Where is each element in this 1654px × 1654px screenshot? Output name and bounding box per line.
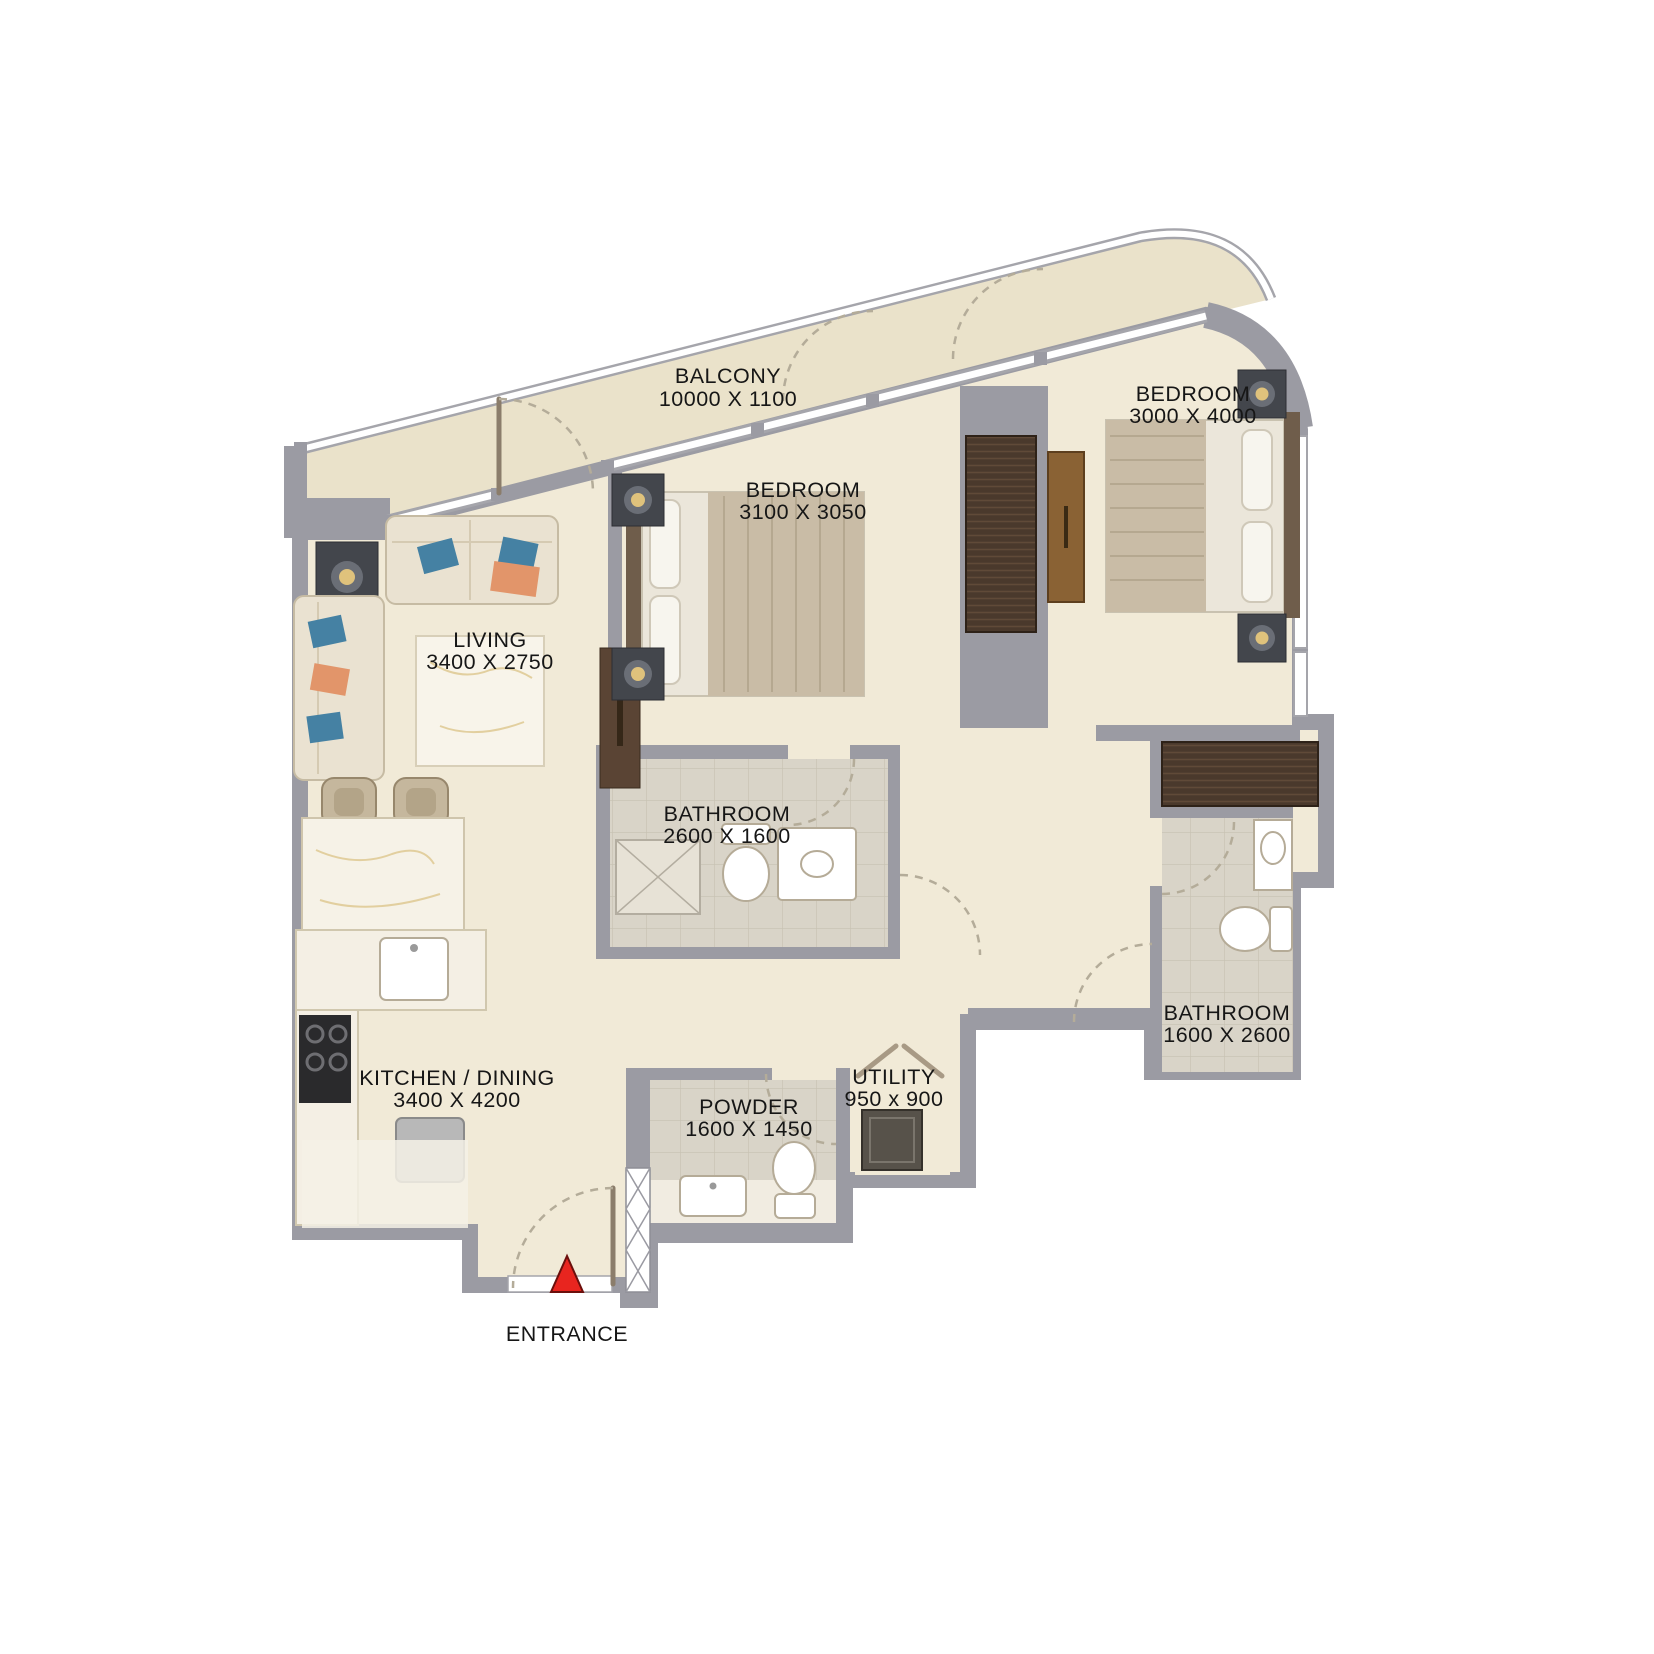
entrance-label: ENTRANCE bbox=[506, 1322, 628, 1346]
wall-bathroom2-top bbox=[1150, 806, 1293, 818]
toilet2-bowl bbox=[1220, 907, 1270, 951]
bed2-pillow-1 bbox=[1242, 430, 1272, 510]
chair-cushion-1 bbox=[334, 788, 364, 816]
dresser-handle bbox=[1064, 506, 1068, 548]
wall-bedroom2-bottom bbox=[1096, 725, 1300, 741]
window-right-2 bbox=[1294, 652, 1307, 716]
room-dims-living: 3400 X 2750 bbox=[426, 650, 553, 674]
room-label-utility: UTILITY bbox=[852, 1065, 936, 1089]
wall-powder-bottom bbox=[626, 1223, 850, 1235]
bed2-pillow-2 bbox=[1242, 522, 1272, 602]
floorplan-svg: BALCONY 10000 X 1100 BEDROOM 3000 X 4000… bbox=[0, 0, 1654, 1654]
powder-sink bbox=[680, 1176, 746, 1216]
room-dims-bathroom-1: 2600 X 1600 bbox=[663, 824, 790, 848]
room-label-powder: POWDER bbox=[699, 1095, 799, 1119]
wall-bathroom1-bottom bbox=[596, 945, 900, 959]
room-label-bathroom-2: BATHROOM bbox=[1164, 1001, 1291, 1025]
room-label-bedroom-1: BEDROOM bbox=[746, 478, 861, 502]
wall-hall-bottom bbox=[968, 1008, 1152, 1022]
dining-table-marble bbox=[302, 818, 464, 936]
room-dims-utility: 950 x 900 bbox=[845, 1087, 944, 1111]
powder-toilet-bowl bbox=[773, 1142, 815, 1194]
bathroom2-wardrobe bbox=[1162, 742, 1318, 806]
throw-orange bbox=[490, 561, 540, 597]
left-step-wall-b bbox=[284, 498, 390, 532]
powder-toilet-base bbox=[775, 1194, 815, 1218]
room-label-bedroom-2: BEDROOM bbox=[1136, 382, 1251, 406]
toilet2-tank bbox=[1270, 907, 1292, 951]
wall-shaft-top bbox=[626, 1068, 650, 1168]
powder-faucet bbox=[710, 1183, 717, 1190]
vanity2 bbox=[1254, 820, 1292, 890]
chair-cushion-2 bbox=[406, 788, 436, 816]
table-lamp-glow bbox=[339, 569, 355, 585]
wall-bathroom2-left-lower bbox=[1150, 886, 1162, 1072]
room-dims-bedroom-2: 3000 X 4000 bbox=[1129, 404, 1256, 428]
bed2-blanket bbox=[1106, 420, 1206, 612]
kitchen-marble-floor bbox=[302, 1140, 468, 1228]
toilet1-bowl bbox=[723, 847, 769, 901]
sink-faucet bbox=[410, 944, 418, 952]
wall-bathroom1-right bbox=[886, 745, 900, 959]
pillow-blue-4 bbox=[306, 712, 343, 743]
room-dims-balcony: 10000 X 1100 bbox=[659, 387, 797, 411]
bed2-lamp-top-glow bbox=[1256, 388, 1269, 401]
bed2-headboard bbox=[1284, 412, 1300, 618]
bed1-lamp-bottom-glow bbox=[631, 667, 645, 681]
room-dims-powder: 1600 X 1450 bbox=[685, 1117, 812, 1141]
room-label-bathroom-1: BATHROOM bbox=[664, 802, 791, 826]
dining-kitchen-furniture bbox=[296, 778, 486, 1228]
room-label-balcony: BALCONY bbox=[675, 364, 781, 388]
wardrobe-column-unit bbox=[966, 436, 1036, 632]
floorplan-canvas: BALCONY 10000 X 1100 BEDROOM 3000 X 4000… bbox=[0, 0, 1654, 1654]
room-dims-kitchen-dining: 3400 X 4200 bbox=[393, 1088, 520, 1112]
shaft-closet bbox=[626, 1168, 650, 1292]
room-dims-bedroom-1: 3100 X 3050 bbox=[739, 500, 866, 524]
bed2-lamp-bottom-glow bbox=[1256, 632, 1269, 645]
room-dims-bathroom-2: 1600 X 2600 bbox=[1163, 1023, 1290, 1047]
bed1-lamp-top-glow bbox=[631, 493, 645, 507]
room-label-living: LIVING bbox=[453, 628, 527, 652]
room-label-kitchen-dining: KITCHEN / DINING bbox=[359, 1066, 555, 1090]
